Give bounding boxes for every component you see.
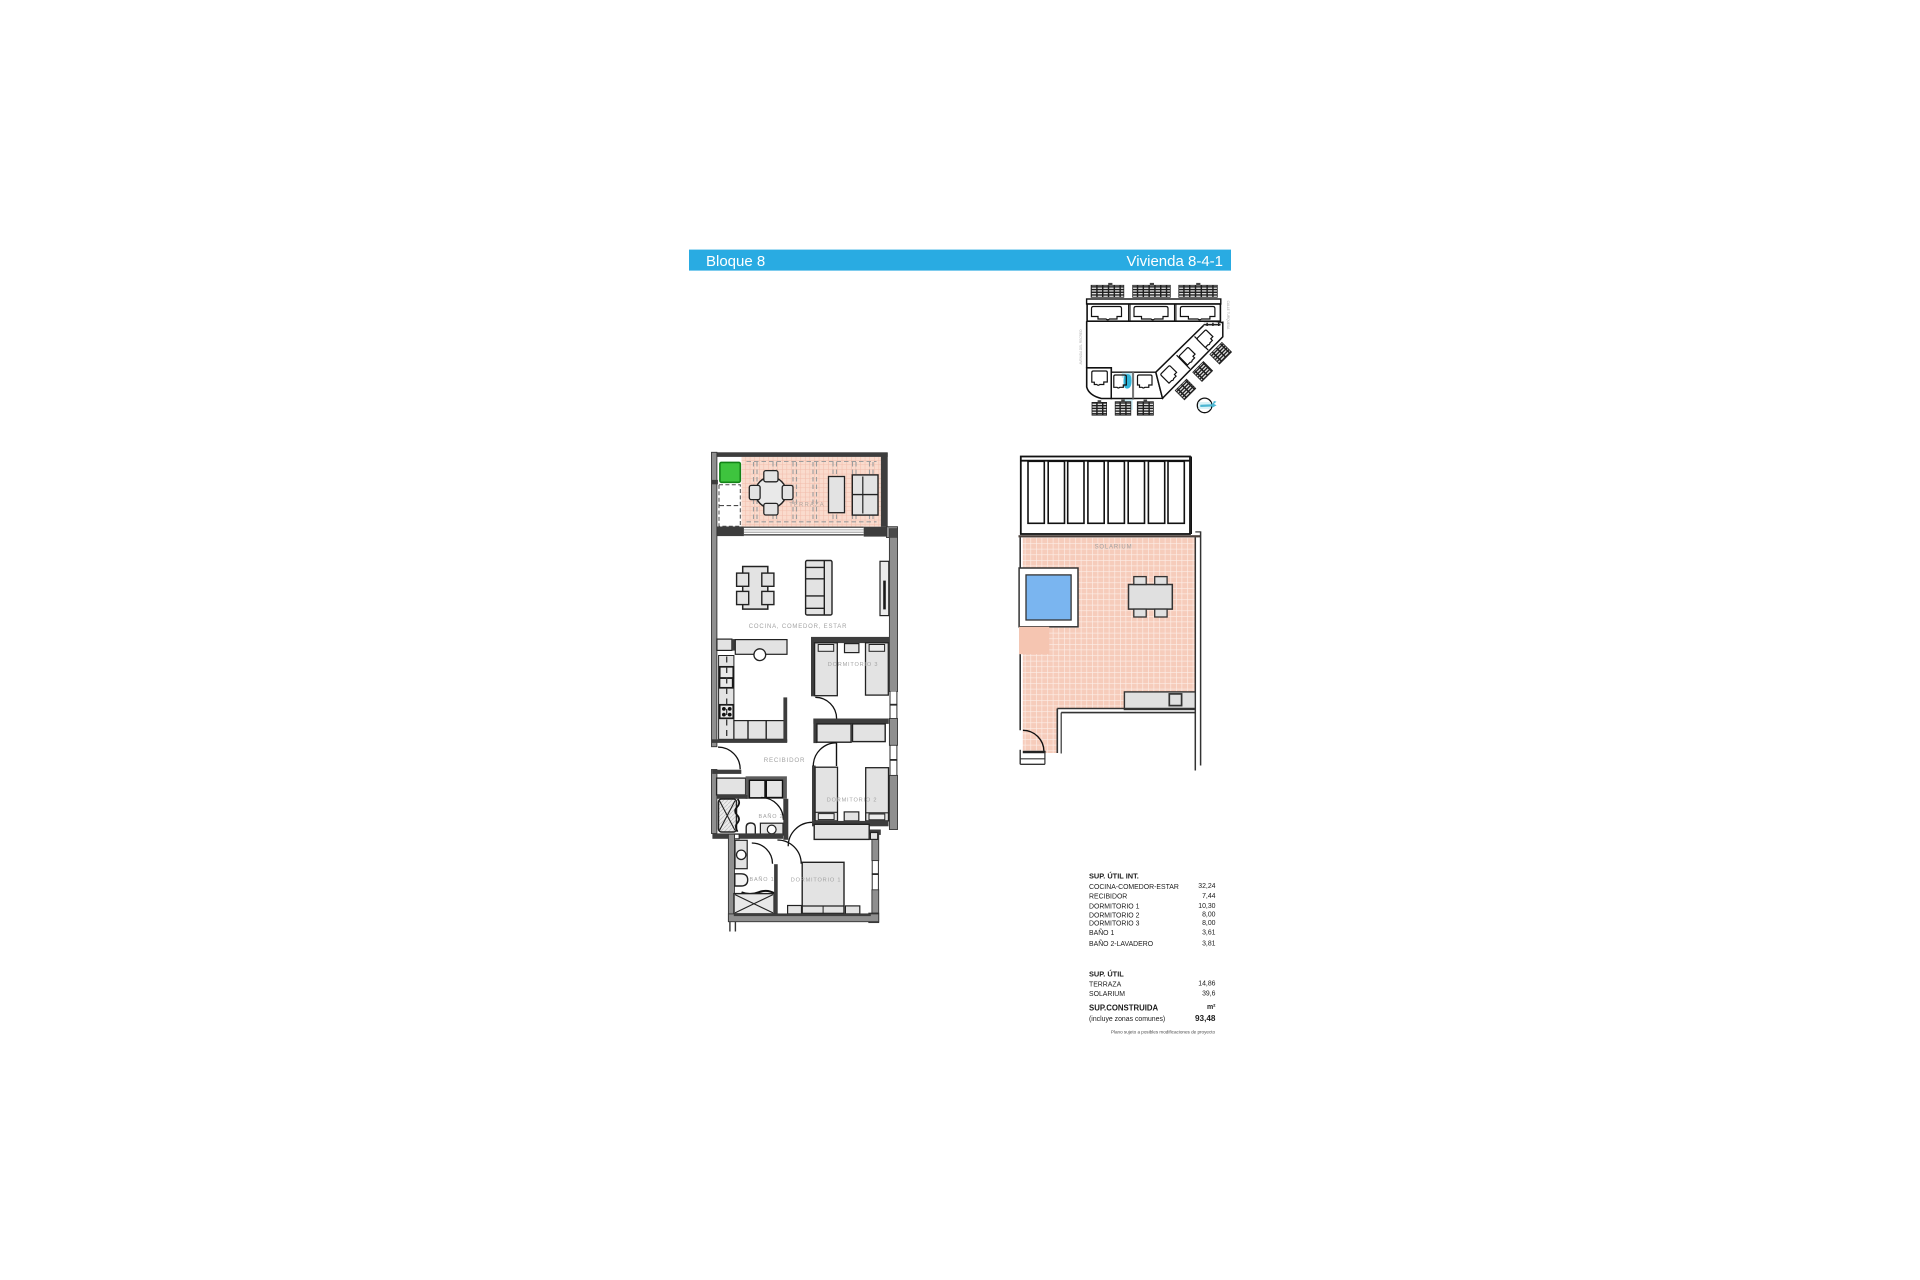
- svg-text:10,30: 10,30: [1198, 903, 1215, 910]
- svg-text:SOLARIUM: SOLARIUM: [1089, 991, 1125, 998]
- svg-text:7,44: 7,44: [1202, 893, 1216, 900]
- svg-text:Bloque 8: Bloque 8: [706, 253, 765, 270]
- svg-text:SOLARIUM: SOLARIUM: [1095, 545, 1133, 551]
- svg-text:Vivienda 8-4-1: Vivienda 8-4-1: [1127, 253, 1223, 270]
- svg-text:(incluye zonas comunes): (incluye zonas comunes): [1089, 1016, 1165, 1023]
- svg-text:BAÑO 1: BAÑO 1: [750, 876, 775, 883]
- svg-text:39,6: 39,6: [1202, 991, 1216, 998]
- svg-text:BAÑO 2: BAÑO 2: [759, 813, 784, 820]
- svg-text:DORMITORIO 1: DORMITORIO 1: [1089, 903, 1140, 910]
- svg-text:Plano sujeto a posibles modifi: Plano sujeto a posibles modificaciones d…: [1111, 1030, 1216, 1035]
- svg-text:SUP. ÚTIL: SUP. ÚTIL: [1089, 970, 1124, 979]
- svg-text:3,81: 3,81: [1202, 940, 1216, 947]
- svg-text:BAÑO 2-LAVADERO: BAÑO 2-LAVADERO: [1089, 939, 1154, 948]
- svg-text:AVENIDA DEL RECREO: AVENIDA DEL RECREO: [1079, 329, 1083, 365]
- svg-text:RECIBIDOR: RECIBIDOR: [1089, 893, 1127, 900]
- svg-text:DORMITORIO 1: DORMITORIO 1: [791, 878, 842, 884]
- svg-text:8,00: 8,00: [1202, 920, 1216, 927]
- svg-text:DORMITORIO 3: DORMITORIO 3: [828, 662, 879, 668]
- svg-text:DORMITORIO 2: DORMITORIO 2: [1089, 912, 1140, 919]
- svg-text:3,61: 3,61: [1202, 929, 1216, 936]
- svg-text:SUP. ÚTIL INT.: SUP. ÚTIL INT.: [1089, 872, 1139, 881]
- svg-text:COCINA-COMEDOR-ESTAR: COCINA-COMEDOR-ESTAR: [1089, 884, 1179, 891]
- svg-text:93,48: 93,48: [1195, 1014, 1216, 1023]
- svg-text:TERRAZA: TERRAZA: [1089, 981, 1122, 988]
- svg-text:14,86: 14,86: [1198, 981, 1215, 988]
- svg-text:8,00: 8,00: [1202, 912, 1216, 919]
- svg-text:TERRAZA: TERRAZA: [789, 503, 825, 509]
- svg-text:BAÑO 1: BAÑO 1: [1089, 928, 1114, 937]
- svg-text:CALLE TURQUESA: CALLE TURQUESA: [1226, 301, 1230, 331]
- svg-text:DORMITORIO 3: DORMITORIO 3: [1089, 921, 1140, 928]
- svg-text:32,24: 32,24: [1198, 883, 1215, 890]
- svg-text:RECIBIDOR: RECIBIDOR: [764, 757, 806, 764]
- svg-text:SUP.CONSTRUIDA: SUP.CONSTRUIDA: [1089, 1003, 1159, 1012]
- svg-text:DORMITORIO 2: DORMITORIO 2: [827, 798, 878, 804]
- svg-text:COCINA, COMEDOR, ESTAR: COCINA, COMEDOR, ESTAR: [749, 624, 848, 630]
- svg-text:m²: m²: [1207, 1004, 1216, 1011]
